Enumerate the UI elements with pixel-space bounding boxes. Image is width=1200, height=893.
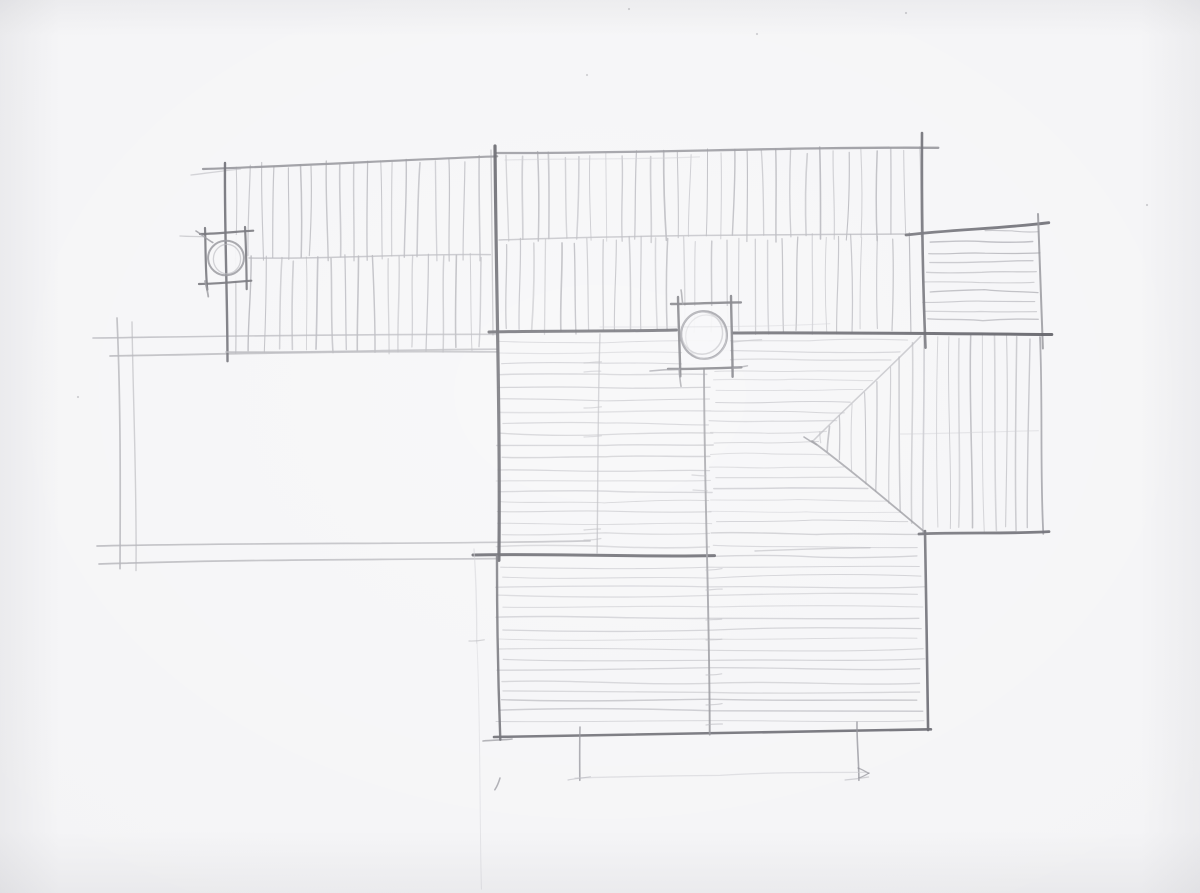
- paper-specks: [77, 8, 1148, 398]
- hatch-roof-top-middle-upper: [506, 147, 921, 243]
- left-rectangle-outline: [93, 318, 590, 571]
- hatch-bottom-block: [496, 339, 925, 722]
- hatch-roof-top-left-lower: [236, 253, 481, 353]
- hatch-roof-top-right: [923, 230, 1040, 320]
- hatch-roof-top-left-upper: [235, 156, 480, 261]
- roof-plan-sketch: [0, 0, 1200, 893]
- scanned-paper-sheet: [0, 0, 1200, 893]
- guide-lines: [469, 549, 484, 889]
